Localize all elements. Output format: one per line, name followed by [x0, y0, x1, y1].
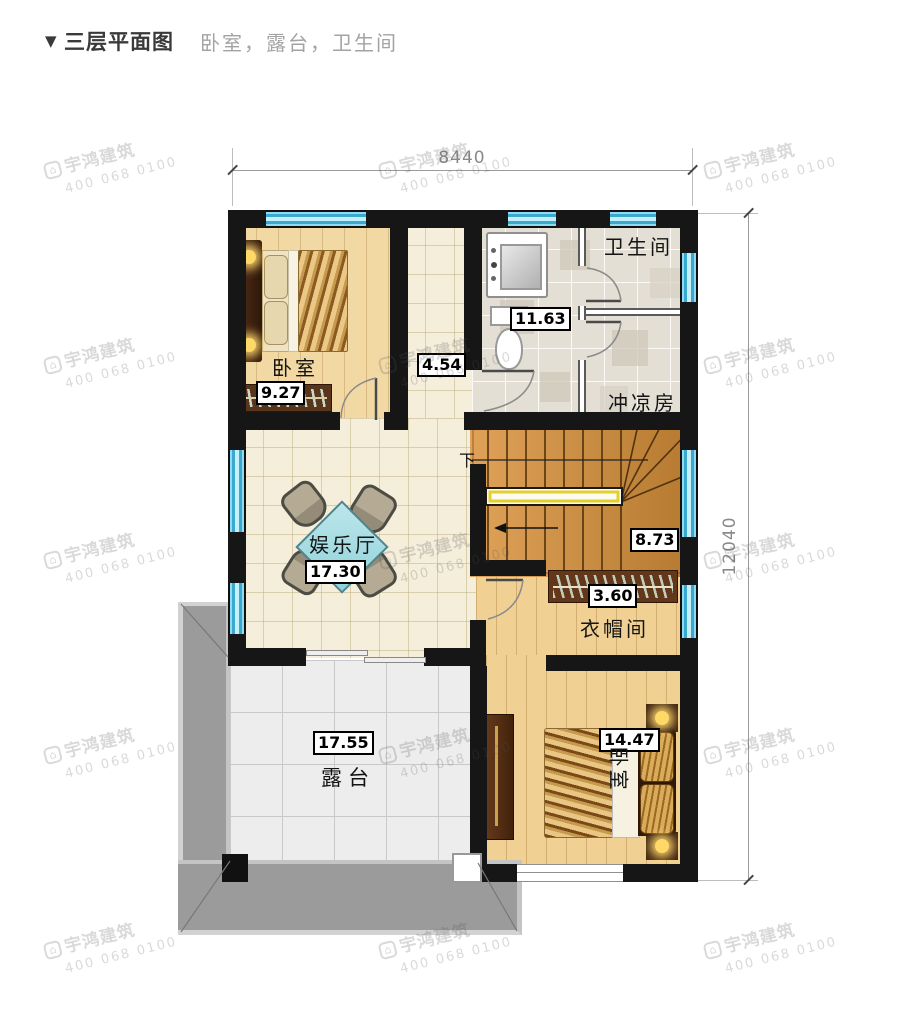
bedroom1-label: 卧室	[272, 352, 318, 381]
terrace-label: 露台	[321, 762, 375, 792]
cloak-label: 衣帽间	[580, 613, 649, 642]
toilet-label: 卫生间	[604, 231, 673, 260]
page-title: 三层平面图	[64, 26, 174, 56]
cloak-area: 3.60	[588, 584, 637, 608]
stairs-down-label: 下	[459, 447, 475, 471]
corridor-area: 4.54	[417, 353, 466, 377]
hall-area: 17.30	[305, 560, 366, 584]
bedroom2-label: 卧室	[606, 747, 635, 795]
dim-extension-line	[692, 148, 693, 206]
dim-line-top	[232, 170, 693, 171]
dim-right-value: 12040	[720, 516, 740, 576]
hall-label: 娱乐厅	[309, 529, 378, 558]
dim-top-value: 8440	[232, 148, 692, 168]
bath-area: 11.63	[510, 307, 571, 331]
terrace-area: 17.55	[313, 731, 374, 755]
dim-line-right	[748, 213, 749, 881]
title-marker-icon: ▼	[45, 32, 57, 50]
shower-label: 冲凉房	[608, 387, 677, 416]
stairs-area: 8.73	[630, 528, 679, 552]
page-subtitle: 卧室，露台，卫生间	[200, 27, 398, 56]
bedroom1-area: 9.27	[256, 381, 305, 405]
